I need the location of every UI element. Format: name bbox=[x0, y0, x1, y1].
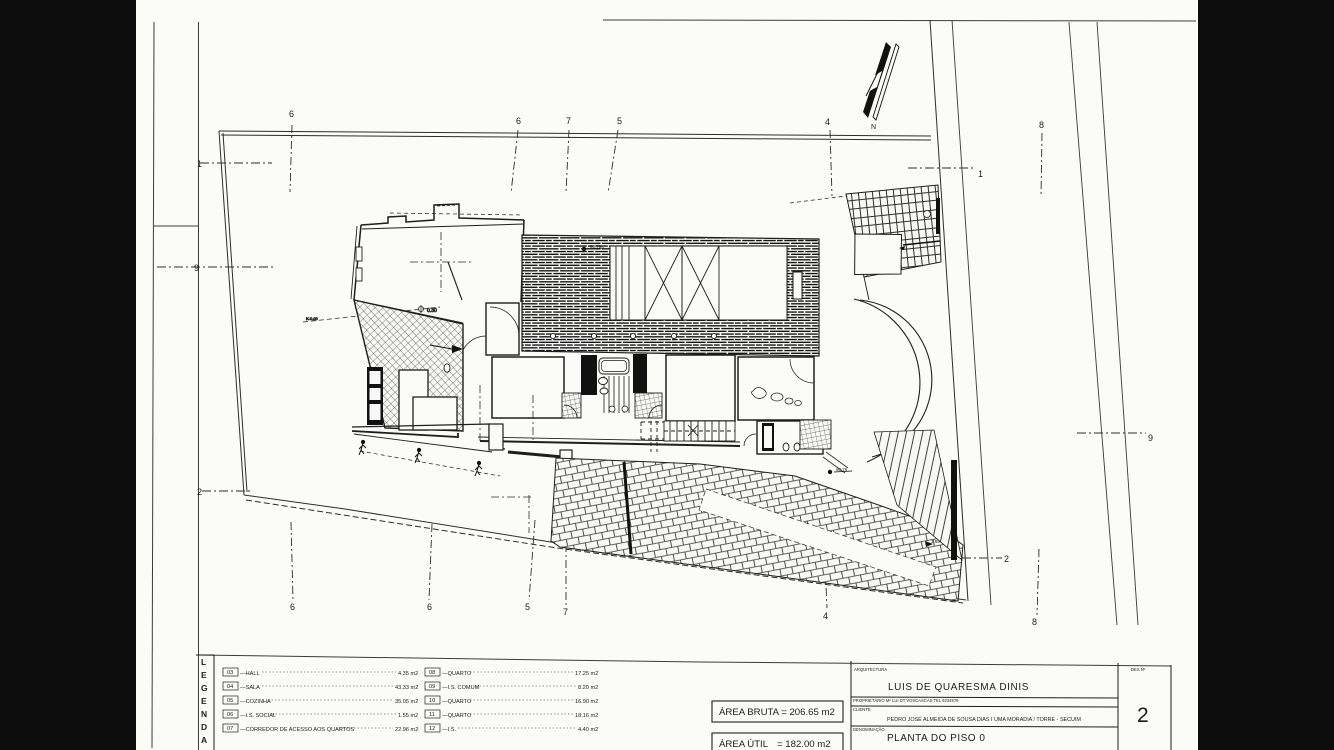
svg-text:ÁREA ÚTIL: ÁREA ÚTIL bbox=[719, 739, 769, 750]
svg-text:—SALA: —SALA bbox=[240, 685, 260, 691]
svg-text:03: 03 bbox=[227, 670, 233, 676]
svg-text:04: 04 bbox=[227, 684, 233, 690]
svg-text:PEDRO JOSÉ ALMEIDA DE SOUSA DI: PEDRO JOSÉ ALMEIDA DE SOUSA DIAS I UMA M… bbox=[887, 716, 1081, 723]
svg-text:—QUARTO: —QUARTO bbox=[442, 713, 472, 719]
svg-text:K-0.00: K-0.00 bbox=[306, 316, 319, 321]
svg-text:DES Nº: DES Nº bbox=[1131, 667, 1146, 672]
svg-text:—CORREDOR DE ACESSO AOS QUARTO: —CORREDOR DE ACESSO AOS QUARTOS bbox=[240, 727, 354, 733]
svg-text:12: 12 bbox=[429, 726, 435, 732]
svg-text:43.33 m2: 43.33 m2 bbox=[395, 685, 418, 691]
svg-text:8: 8 bbox=[1032, 617, 1037, 627]
svg-text:5: 5 bbox=[525, 602, 530, 612]
svg-text:DENOMINAÇÃO: DENOMINAÇÃO bbox=[853, 727, 885, 732]
svg-text:9: 9 bbox=[194, 263, 199, 273]
svg-text:0.30: 0.30 bbox=[427, 308, 437, 314]
svg-text:—I.S.: —I.S. bbox=[442, 727, 456, 733]
svg-text:8: 8 bbox=[1039, 120, 1044, 130]
svg-text:—COZINHA: —COZINHA bbox=[240, 699, 271, 705]
svg-text:60.76: 60.76 bbox=[836, 467, 848, 472]
svg-text:—QUARTO: —QUARTO bbox=[442, 671, 472, 677]
svg-text:4.35 m2: 4.35 m2 bbox=[398, 671, 418, 677]
svg-text:4: 4 bbox=[825, 117, 830, 127]
svg-text:L: L bbox=[201, 657, 206, 667]
svg-text:—HALL: —HALL bbox=[240, 671, 260, 677]
svg-text:E: E bbox=[201, 696, 207, 706]
svg-text:09: 09 bbox=[429, 684, 435, 690]
svg-text:LUIS DE QUARESMA DINIS: LUIS DE QUARESMA DINIS bbox=[888, 682, 1029, 693]
svg-text:D: D bbox=[201, 722, 207, 732]
svg-text:PROPRIETÁRIO Mº LUI DT VOSCA: PROPRIETÁRIO Mº LUI DT VOSCASCAS TEL 923… bbox=[853, 698, 959, 703]
svg-text:11: 11 bbox=[429, 712, 435, 718]
svg-text:8.20 m2: 8.20 m2 bbox=[578, 685, 598, 691]
svg-text:—I.S. COMUM: —I.S. COMUM bbox=[442, 685, 480, 691]
svg-text:2: 2 bbox=[1004, 554, 1009, 564]
svg-text:07: 07 bbox=[227, 726, 233, 732]
svg-text:1.55 m2: 1.55 m2 bbox=[398, 713, 418, 719]
svg-text:18.16 m2: 18.16 m2 bbox=[575, 713, 598, 719]
svg-text:ÁREA BRUTA = 206.65 m2: ÁREA BRUTA = 206.65 m2 bbox=[719, 707, 835, 718]
svg-text:05: 05 bbox=[227, 698, 233, 704]
svg-text:G: G bbox=[201, 683, 208, 693]
svg-text:—I.S. SOCIAL: —I.S. SOCIAL bbox=[240, 713, 276, 719]
svg-text:= 182.00 m2: = 182.00 m2 bbox=[777, 739, 831, 750]
svg-text:6: 6 bbox=[289, 109, 294, 119]
svg-text:1: 1 bbox=[197, 159, 202, 169]
svg-text:17.25 m2: 17.25 m2 bbox=[575, 671, 598, 677]
svg-text:2: 2 bbox=[1137, 704, 1149, 727]
svg-text:08: 08 bbox=[429, 670, 435, 676]
svg-text:7: 7 bbox=[566, 116, 571, 126]
svg-text:9: 9 bbox=[1148, 433, 1153, 443]
svg-text:60.70: 60.70 bbox=[590, 244, 602, 249]
svg-text:CLIENTE: CLIENTE bbox=[853, 707, 871, 712]
svg-text:4.40 m2: 4.40 m2 bbox=[578, 727, 598, 733]
svg-text:35.05 m2: 35.05 m2 bbox=[395, 699, 418, 705]
svg-text:10: 10 bbox=[429, 698, 435, 704]
svg-text:E: E bbox=[201, 670, 207, 680]
svg-text:1.59: 1.59 bbox=[931, 539, 940, 544]
svg-text:6: 6 bbox=[290, 602, 295, 612]
svg-text:N: N bbox=[201, 709, 207, 719]
svg-text:06: 06 bbox=[227, 712, 233, 718]
svg-text:22.96 m2: 22.96 m2 bbox=[395, 727, 418, 733]
svg-text:A: A bbox=[201, 735, 207, 745]
svg-text:ARQUITECTURA: ARQUITECTURA bbox=[854, 667, 887, 672]
svg-text:4: 4 bbox=[823, 611, 828, 621]
svg-text:PLANTA DO PISO 0: PLANTA DO PISO 0 bbox=[887, 733, 985, 744]
svg-text:1: 1 bbox=[978, 169, 983, 179]
svg-text:N: N bbox=[871, 124, 876, 131]
svg-text:7: 7 bbox=[563, 607, 568, 617]
svg-text:—QUARTO: —QUARTO bbox=[442, 699, 472, 705]
svg-text:6: 6 bbox=[516, 116, 521, 126]
svg-text:6: 6 bbox=[427, 602, 432, 612]
svg-text:2: 2 bbox=[197, 487, 202, 497]
svg-text:16.90 m2: 16.90 m2 bbox=[575, 699, 598, 705]
svg-text:5: 5 bbox=[617, 116, 622, 126]
